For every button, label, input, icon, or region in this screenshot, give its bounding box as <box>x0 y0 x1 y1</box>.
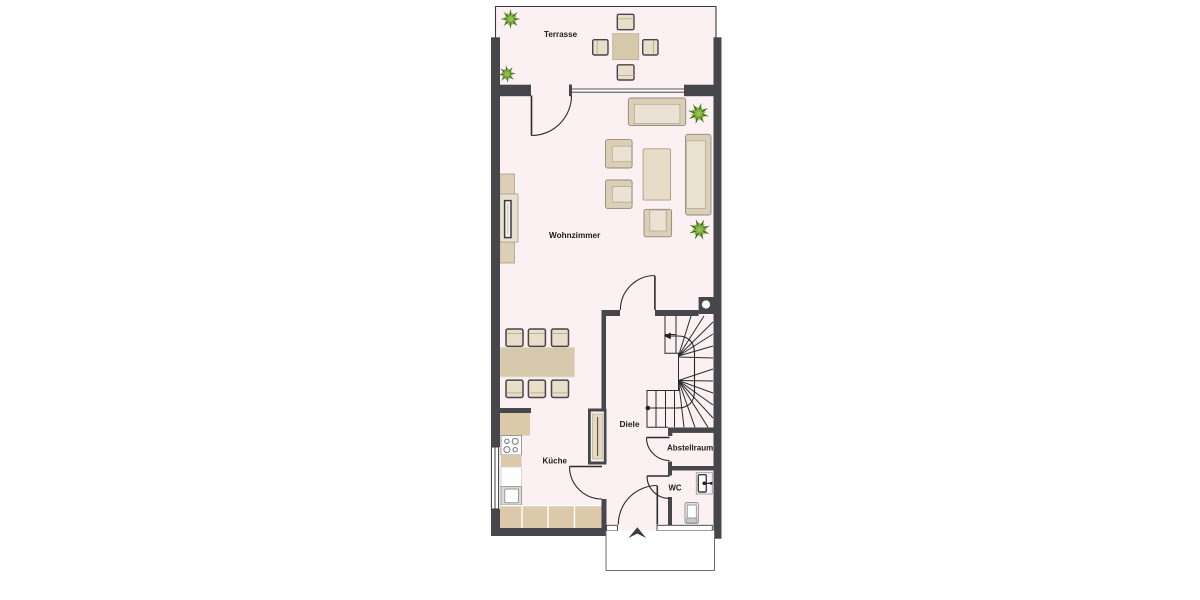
svg-text:Terrasse: Terrasse <box>544 30 578 39</box>
svg-text:WC: WC <box>669 484 682 493</box>
svg-text:Wohnzimmer: Wohnzimmer <box>549 231 601 240</box>
svg-text:Abstellraum: Abstellraum <box>667 444 713 453</box>
svg-text:Küche: Küche <box>543 457 568 466</box>
svg-text:Diele: Diele <box>620 419 640 429</box>
